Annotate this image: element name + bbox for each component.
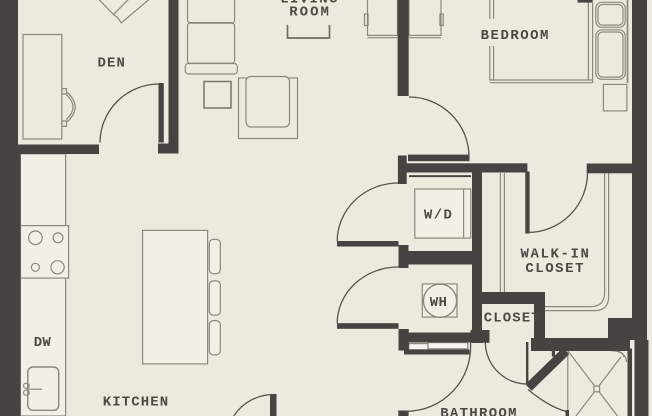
- svg-text:CLOSET: CLOSET: [484, 311, 541, 327]
- svg-text:ROOM: ROOM: [289, 5, 331, 21]
- svg-text:WALK-IN: WALK-IN: [520, 246, 590, 262]
- svg-text:DW: DW: [34, 335, 52, 351]
- svg-text:KITCHEN: KITCHEN: [103, 395, 170, 411]
- svg-text:BATHROOM: BATHROOM: [440, 406, 518, 416]
- svg-text:DEN: DEN: [98, 56, 127, 72]
- svg-text:CLOSET: CLOSET: [525, 261, 585, 277]
- svg-text:W/D: W/D: [424, 208, 453, 224]
- svg-text:WH: WH: [430, 295, 447, 311]
- svg-text:BEDROOM: BEDROOM: [481, 28, 550, 44]
